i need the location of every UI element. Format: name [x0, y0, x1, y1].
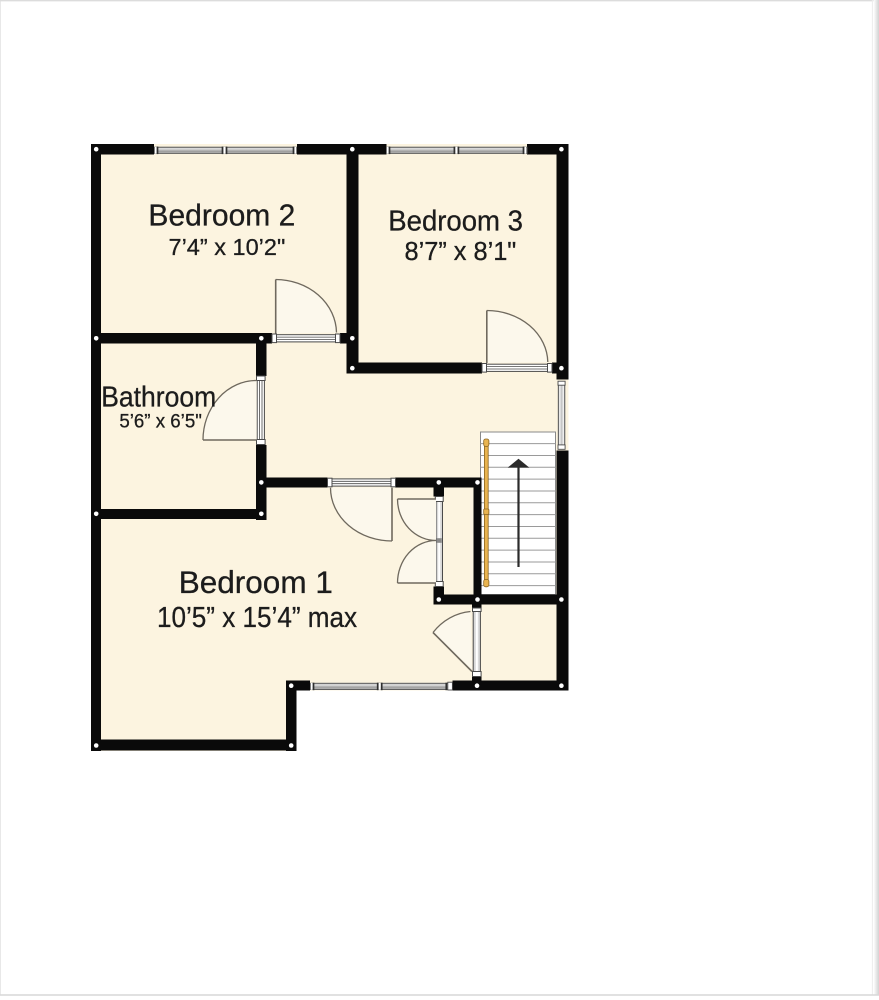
svg-text:Bathroom: Bathroom: [101, 381, 216, 413]
svg-text:7’4” x 10’2": 7’4” x 10’2": [169, 234, 286, 260]
svg-text:Bedroom 3: Bedroom 3: [388, 204, 523, 237]
svg-text:5’6” x 6’5": 5’6” x 6’5": [119, 411, 202, 432]
svg-text:10’5” x 15’4” max: 10’5” x 15’4” max: [157, 601, 357, 634]
svg-text:Bedroom 2: Bedroom 2: [148, 199, 295, 232]
svg-text:8’7” x 8’1": 8’7” x 8’1": [405, 238, 517, 266]
svg-text:Bedroom 1: Bedroom 1: [179, 564, 333, 600]
